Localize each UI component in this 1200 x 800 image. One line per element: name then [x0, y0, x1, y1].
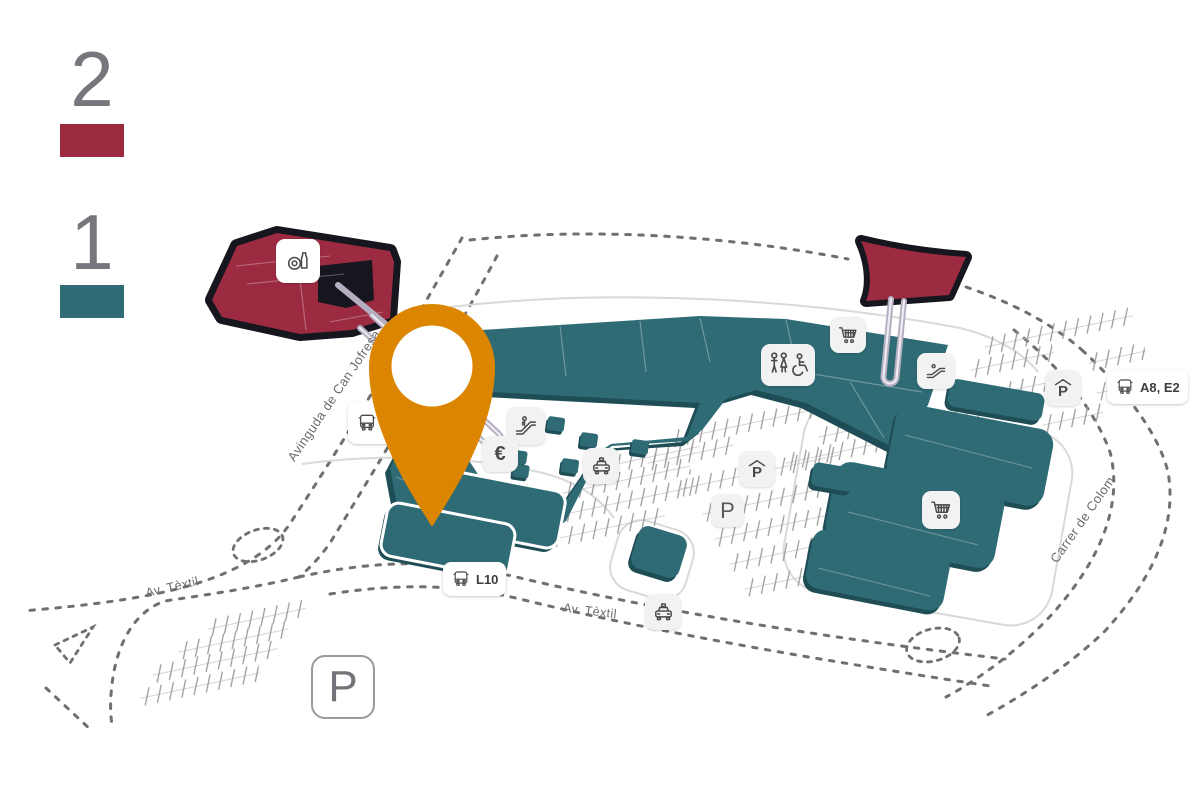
- roundabout-west: [228, 522, 287, 568]
- bus-stop-west[interactable]: L7, BUS: [348, 402, 415, 444]
- bus-route-label: BUS: [383, 423, 407, 436]
- kiosk-cube[interactable]: [561, 458, 580, 474]
- kiosk-cube[interactable]: [547, 416, 566, 432]
- parking-icon: P: [720, 500, 735, 522]
- traffic-island: [55, 627, 93, 663]
- shopping-cart-icon: [836, 323, 861, 348]
- mall-map-canvas: [0, 0, 1200, 800]
- restroom-icon: [766, 350, 810, 380]
- floor-legend: 2 1: [58, 40, 126, 318]
- legend-floor-2-swatch[interactable]: [60, 124, 124, 157]
- parking-letter: P: [1058, 384, 1068, 399]
- kiosk-cube[interactable]: [631, 439, 650, 455]
- road-top: [470, 234, 848, 259]
- bus-route-label: L10: [476, 572, 498, 587]
- legend-floor-1-swatch[interactable]: [60, 285, 124, 318]
- taxi-badge-plaza: [583, 448, 619, 484]
- bus-route-label: A8, E2: [1140, 380, 1180, 395]
- taxi-icon: [651, 600, 676, 625]
- main-lot-parking-sign: P: [311, 655, 375, 719]
- atm-badge: €: [482, 436, 518, 472]
- covered-parking-badge-center: P: [739, 451, 775, 487]
- euro-icon: €: [494, 443, 505, 466]
- restaurant-badge: [276, 239, 320, 283]
- bus-route-label: L7,: [383, 410, 407, 423]
- escalator-icon: [513, 413, 539, 439]
- surface-parking-badge: P: [711, 494, 744, 527]
- restroom-badge: [761, 344, 815, 386]
- cart-badge-hypermarket: [922, 491, 960, 529]
- roundabout-east: [903, 623, 963, 668]
- bus-icon: [1115, 377, 1135, 397]
- kiosk-cube[interactable]: [580, 432, 599, 448]
- road-sw-segment: [46, 688, 92, 731]
- cart-badge-mall: [830, 317, 866, 353]
- legend-floor-2-number[interactable]: 2: [58, 40, 126, 118]
- restaurant-icon: [284, 247, 312, 275]
- taxi-icon: [589, 454, 614, 479]
- bus-stop-south[interactable]: L10: [443, 562, 506, 596]
- parking-icon: P: [328, 665, 357, 709]
- legend-floor-1-number[interactable]: 1: [58, 203, 126, 281]
- covered-parking-badge-east: P: [1045, 370, 1081, 406]
- bus-icon: [356, 412, 378, 434]
- west-wing-notch: [318, 260, 374, 308]
- parking-letter: P: [752, 465, 762, 480]
- escalator-icon: [923, 359, 949, 383]
- shopping-cart-icon: [928, 497, 955, 524]
- bus-icon: [451, 569, 471, 589]
- escalator-badge-east: [917, 353, 955, 389]
- taxi-badge-south: [645, 594, 681, 630]
- bus-stop-east[interactable]: A8, E2: [1107, 370, 1188, 404]
